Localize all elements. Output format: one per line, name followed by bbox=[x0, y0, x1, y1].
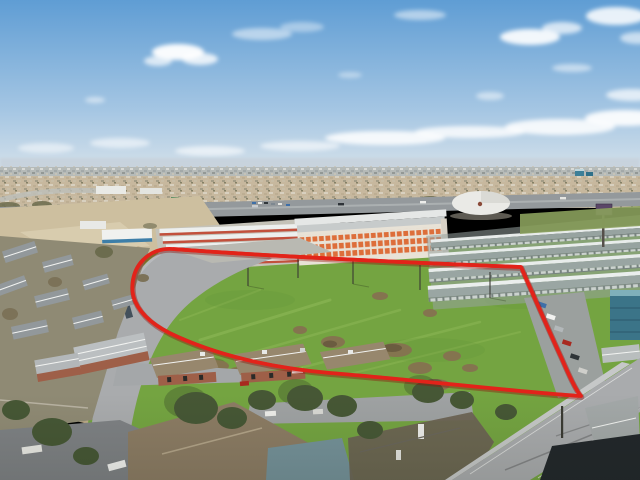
dome-building bbox=[450, 191, 512, 220]
distant-bigbox bbox=[140, 188, 162, 194]
white-shed bbox=[80, 221, 106, 229]
street-pole bbox=[561, 406, 563, 438]
dome-logo bbox=[478, 202, 482, 206]
chimney bbox=[396, 450, 401, 460]
distant-bigbox bbox=[96, 186, 126, 194]
red-car bbox=[240, 381, 249, 386]
aerial-photo-canvas bbox=[0, 0, 640, 480]
teal-building bbox=[610, 290, 640, 340]
aerial-photo bbox=[0, 0, 640, 480]
warehouse-blue-stripe bbox=[102, 228, 152, 243]
